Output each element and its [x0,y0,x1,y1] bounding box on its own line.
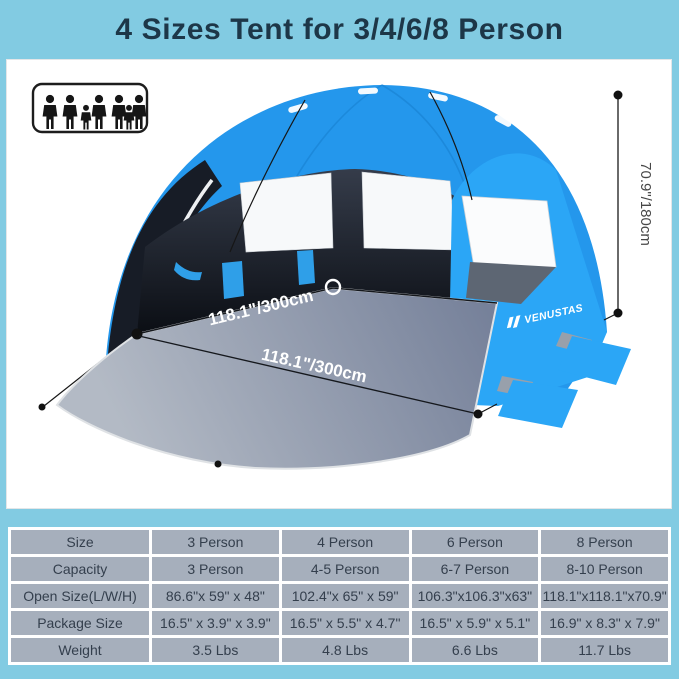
spec-row-label: Open Size(L/W/H) [11,584,149,608]
spec-cell: 3.5 Lbs [152,638,279,662]
table-row-capacity: Capacity 3 Person 4-5 Person 6-7 Person … [11,557,668,581]
spec-cell: 6 Person [412,530,539,554]
dim-label-tent-height: 70.9"/180cm [637,162,654,246]
spec-cell: 4 Person [282,530,409,554]
spec-cell: 16.5" x 5.9" x 5.1" [412,611,539,635]
spec-cell: 4-5 Person [282,557,409,581]
spec-cell: 3 Person [152,557,279,581]
rear-window-left [240,173,333,252]
tent-illustration: VENUSTAS [6,59,672,509]
spec-table: Size 3 Person 4 Person 6 Person 8 Person… [8,527,671,665]
spec-cell: 106.3"x106.3"x63" [412,584,539,608]
product-infographic: 4 Sizes Tent for 3/4/6/8 Person [0,0,679,679]
spec-cell: 6-7 Person [412,557,539,581]
spec-cell: 102.4"x 65" x 59" [282,584,409,608]
spec-row-label: Size [11,530,149,554]
page-title: 4 Sizes Tent for 3/4/6/8 Person [115,13,563,47]
rear-window-right [362,172,456,250]
table-row-package-size: Package Size 16.5" x 3.9" x 3.9" 16.5" x… [11,611,668,635]
spec-cell: 16.5" x 3.9" x 3.9" [152,611,279,635]
spec-row-label: Capacity [11,557,149,581]
spec-cell: 3 Person [152,530,279,554]
dimension-tent-height: 70.9"/180cm [614,91,655,318]
table-row-size: Size 3 Person 4 Person 6 Person 8 Person [11,530,668,554]
spec-row-label: Package Size [11,611,149,635]
spec-row-label: Weight [11,638,149,662]
spec-cell: 118.1"x118.1"x70.9" [541,584,668,608]
family-figures-icon [33,84,147,132]
spec-cell: 4.8 Lbs [282,638,409,662]
spec-cell: 86.6"x 59" x 48" [152,584,279,608]
spec-cell: 16.5" x 5.5" x 4.7" [282,611,409,635]
spec-cell: 16.9" x 8.3" x 7.9" [541,611,668,635]
illustration-panel: VENUSTAS [6,59,672,509]
spec-cell: 11.7 Lbs [541,638,668,662]
spec-cell: 6.6 Lbs [412,638,539,662]
table-row-weight: Weight 3.5 Lbs 4.8 Lbs 6.6 Lbs 11.7 Lbs [11,638,668,662]
spec-cell: 8-10 Person [541,557,668,581]
title-banner: 4 Sizes Tent for 3/4/6/8 Person [0,0,679,59]
spec-cell: 8 Person [541,530,668,554]
table-row-open-size: Open Size(L/W/H) 86.6"x 59" x 48" 102.4"… [11,584,668,608]
